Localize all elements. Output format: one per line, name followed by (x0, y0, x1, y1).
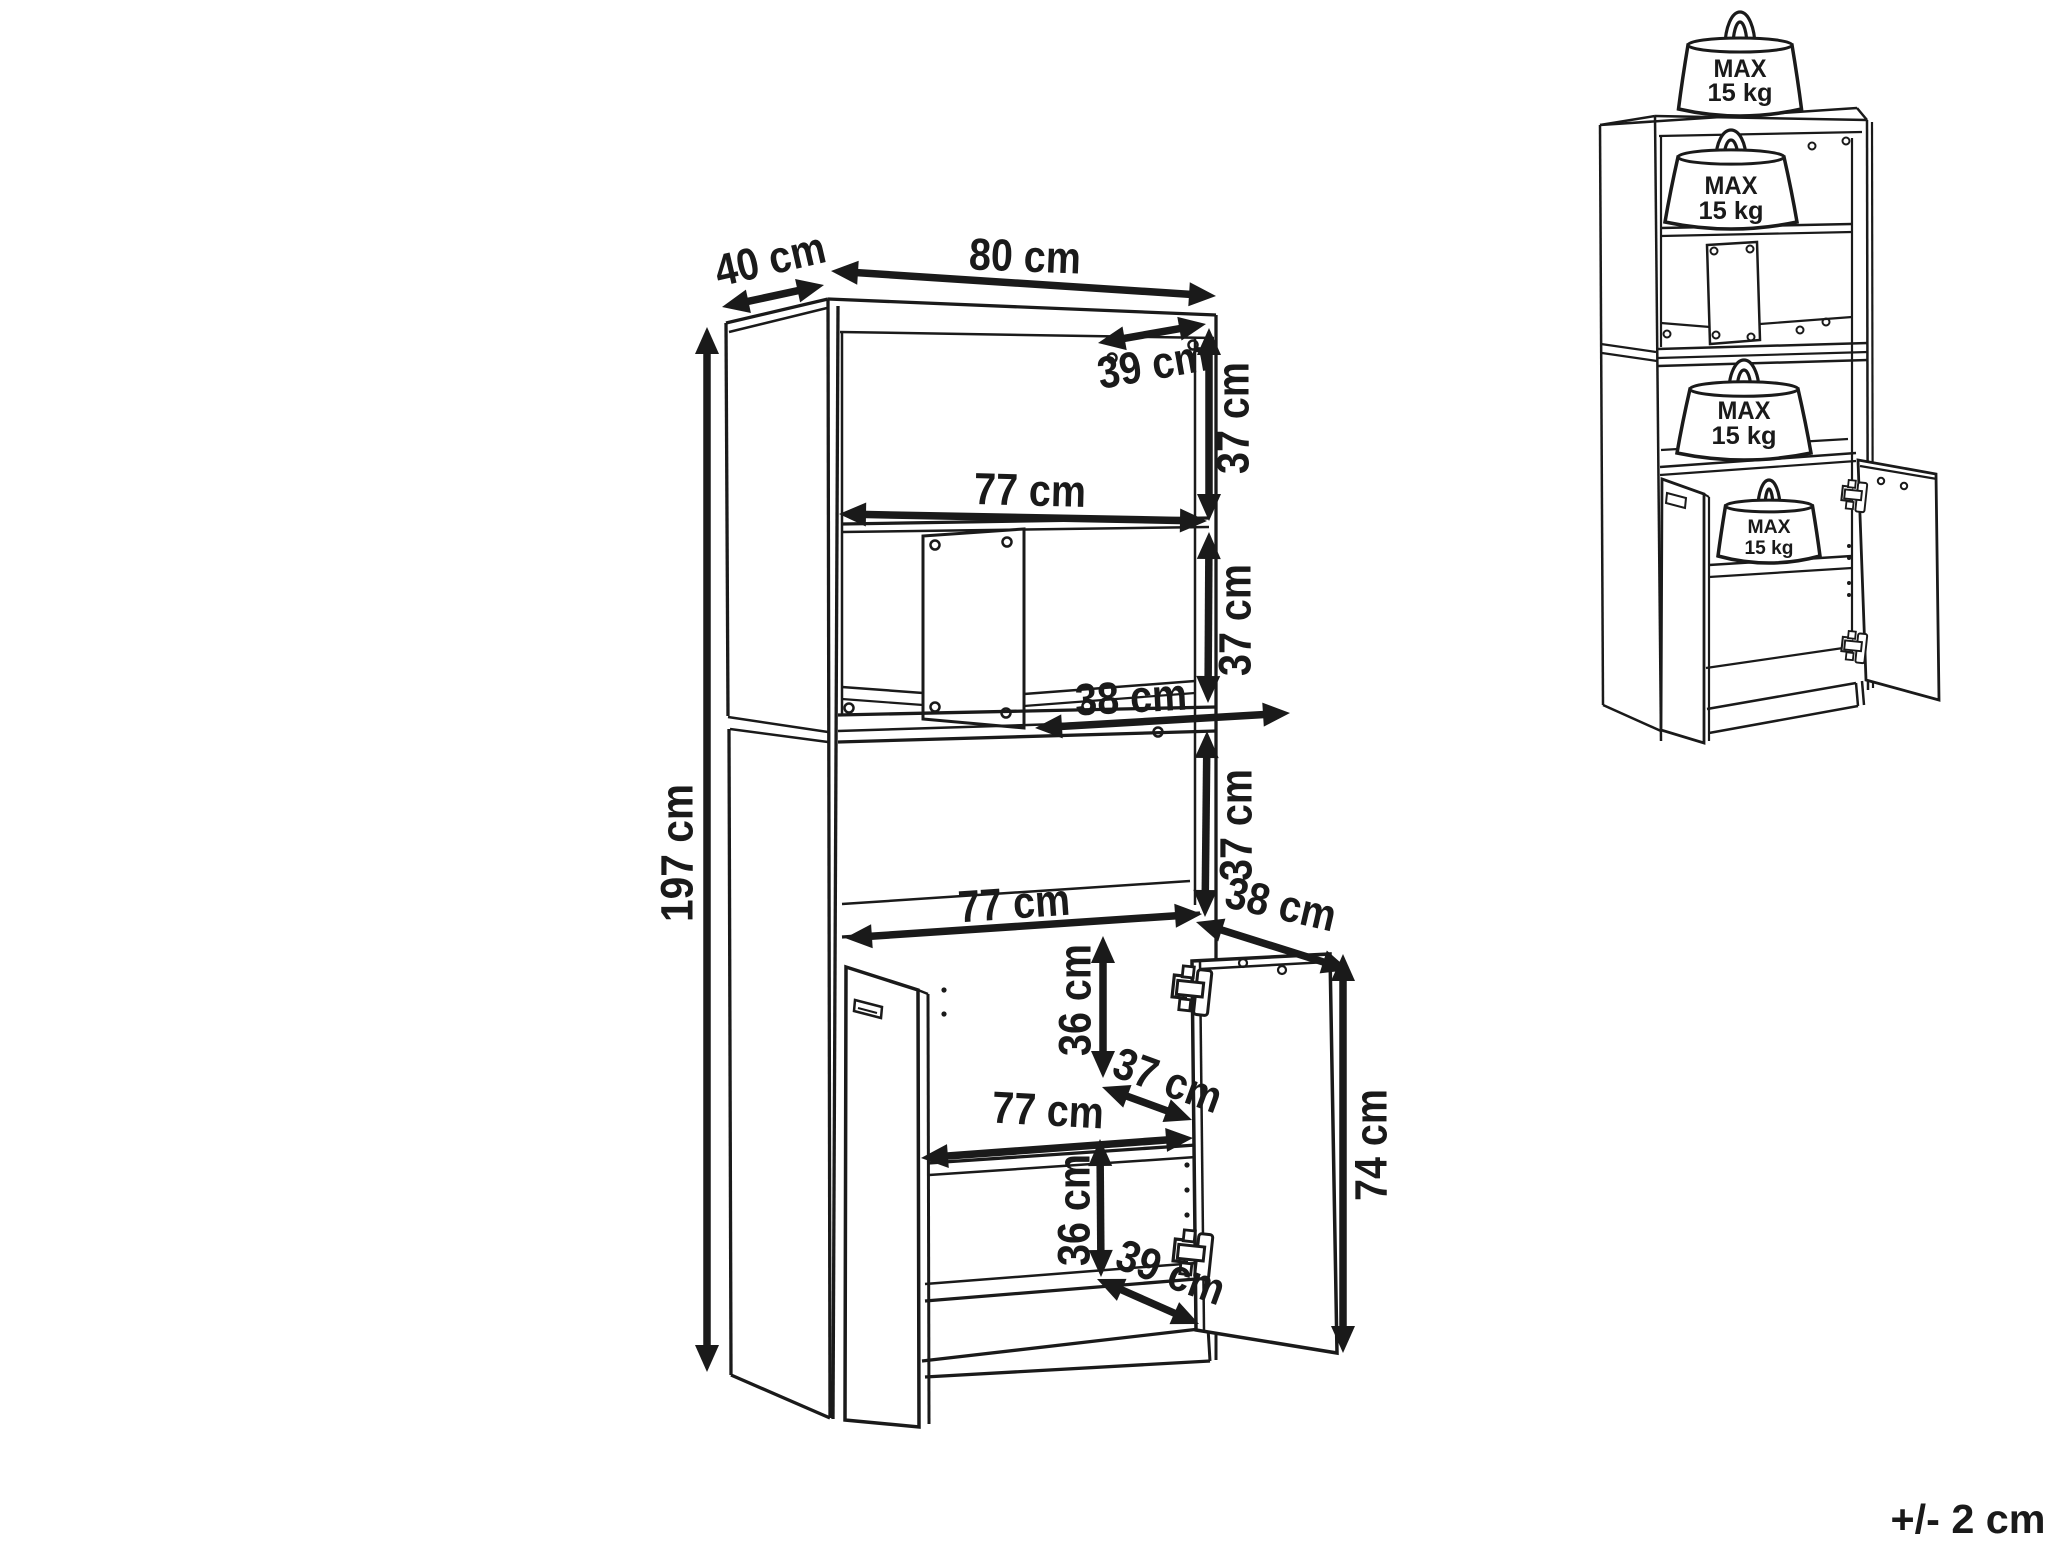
svg-text:77 cm: 77 cm (973, 463, 1086, 517)
svg-text:36 cm: 36 cm (1050, 944, 1101, 1056)
svg-text:77 cm: 77 cm (956, 874, 1071, 933)
svg-text:37 cm: 37 cm (1210, 564, 1261, 676)
svg-text:15 kg: 15 kg (1708, 79, 1773, 107)
svg-text:15 kg: 15 kg (1745, 537, 1794, 559)
svg-text:38 cm: 38 cm (1074, 669, 1189, 726)
svg-text:77 cm: 77 cm (991, 1082, 1106, 1139)
svg-text:MAX: MAX (1705, 172, 1758, 200)
svg-text:197 cm: 197 cm (652, 784, 703, 922)
svg-text:37 cm: 37 cm (1211, 769, 1262, 881)
svg-text:15 kg: 15 kg (1712, 422, 1777, 450)
svg-text:80 cm: 80 cm (968, 228, 1082, 283)
svg-text:74 cm: 74 cm (1346, 1089, 1397, 1201)
svg-text:15 kg: 15 kg (1699, 197, 1764, 225)
svg-text:MAX: MAX (1748, 516, 1791, 538)
svg-text:+/- 2 cm: +/- 2 cm (1891, 1496, 2046, 1542)
svg-text:MAX: MAX (1718, 397, 1771, 425)
svg-text:37 cm: 37 cm (1208, 362, 1259, 474)
svg-text:36 cm: 36 cm (1049, 1154, 1100, 1266)
